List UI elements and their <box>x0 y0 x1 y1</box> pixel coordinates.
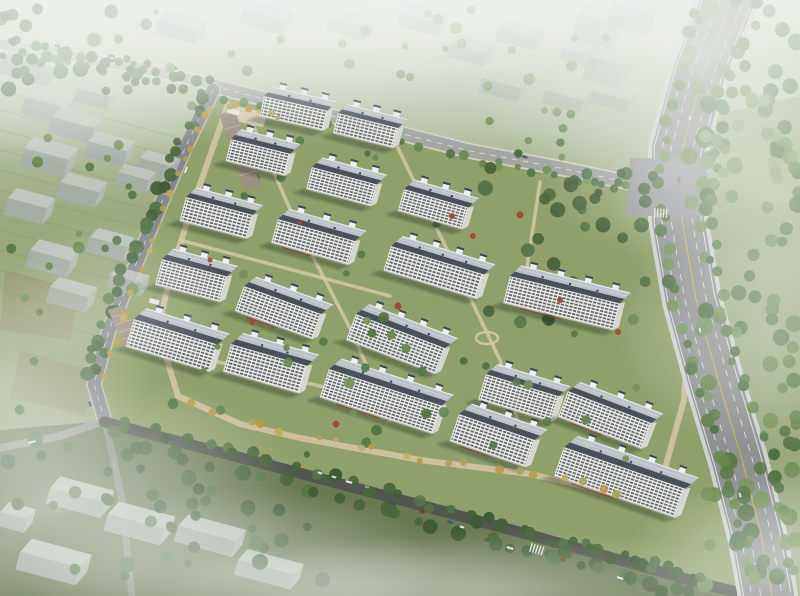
tree <box>516 467 524 475</box>
tree <box>459 150 469 160</box>
red-accent-tree <box>557 297 563 303</box>
tree <box>404 453 411 460</box>
tree <box>372 155 378 161</box>
tree <box>622 455 629 462</box>
tree <box>183 156 189 162</box>
tree <box>329 468 342 481</box>
tree <box>364 437 370 443</box>
tree <box>514 149 523 158</box>
tree <box>460 458 468 466</box>
tree <box>357 251 365 259</box>
tree <box>150 181 164 195</box>
tree <box>417 367 427 377</box>
top-haze-veil <box>0 0 800 150</box>
tree <box>447 505 456 514</box>
tree <box>600 485 608 493</box>
tree <box>521 243 535 257</box>
tree <box>439 407 449 417</box>
tree <box>612 490 621 499</box>
tree <box>166 190 174 198</box>
tree <box>368 444 374 450</box>
tree <box>344 378 355 389</box>
tree <box>312 469 323 480</box>
tree <box>515 164 521 170</box>
tree <box>378 312 389 323</box>
red-accent-tree <box>517 212 524 219</box>
tree <box>415 517 423 525</box>
red-accent-tree <box>449 213 455 219</box>
tree <box>484 512 495 523</box>
tree <box>6 244 16 254</box>
tree <box>495 465 504 474</box>
tree <box>581 415 590 424</box>
tree <box>387 330 396 339</box>
tree <box>714 451 727 464</box>
tree <box>371 425 382 436</box>
tree <box>579 477 587 485</box>
tree <box>283 358 293 368</box>
tree <box>401 344 410 353</box>
tree <box>421 409 431 419</box>
tree <box>514 316 527 329</box>
tree <box>482 362 490 370</box>
tree <box>484 162 496 174</box>
tree <box>445 460 452 467</box>
tree <box>241 192 248 199</box>
tree <box>304 451 310 457</box>
tree <box>334 437 339 442</box>
tree <box>317 435 323 441</box>
tree <box>562 475 568 481</box>
tree <box>495 518 508 531</box>
red-accent-tree <box>249 319 255 325</box>
tree <box>126 183 133 190</box>
residential-compound-aerial-rendering <box>0 0 800 596</box>
fog-patch <box>10 210 230 390</box>
tree <box>350 410 357 417</box>
tree <box>571 330 578 337</box>
tree <box>720 466 734 480</box>
tree <box>768 448 780 460</box>
tree <box>361 363 370 372</box>
tree <box>524 380 533 389</box>
aerial-rendering-viewport <box>0 0 800 596</box>
tree <box>512 378 520 386</box>
tree <box>165 154 174 163</box>
tree <box>319 337 328 346</box>
tree <box>478 180 493 195</box>
tree <box>417 458 423 464</box>
tree <box>532 233 544 245</box>
tree <box>393 489 402 498</box>
tree <box>359 445 366 452</box>
tree <box>364 151 370 157</box>
tree <box>543 417 552 426</box>
red-accent-tree <box>395 303 402 310</box>
red-accent-tree <box>333 421 340 428</box>
tree <box>529 471 538 480</box>
tree <box>368 329 377 338</box>
tree <box>446 149 455 158</box>
tree <box>175 171 181 177</box>
tree <box>754 462 767 475</box>
tree <box>424 504 434 514</box>
tree <box>239 270 248 279</box>
tree <box>283 345 289 351</box>
red-accent-tree <box>298 221 303 226</box>
tree <box>160 205 167 212</box>
tree <box>489 441 497 449</box>
tree <box>128 191 137 200</box>
tree <box>414 495 426 507</box>
tree <box>460 357 468 365</box>
tree <box>200 368 206 374</box>
red-accent-tree <box>470 233 476 239</box>
tree <box>275 428 283 436</box>
tree <box>363 317 371 325</box>
tree <box>470 516 483 529</box>
tree <box>343 270 350 277</box>
